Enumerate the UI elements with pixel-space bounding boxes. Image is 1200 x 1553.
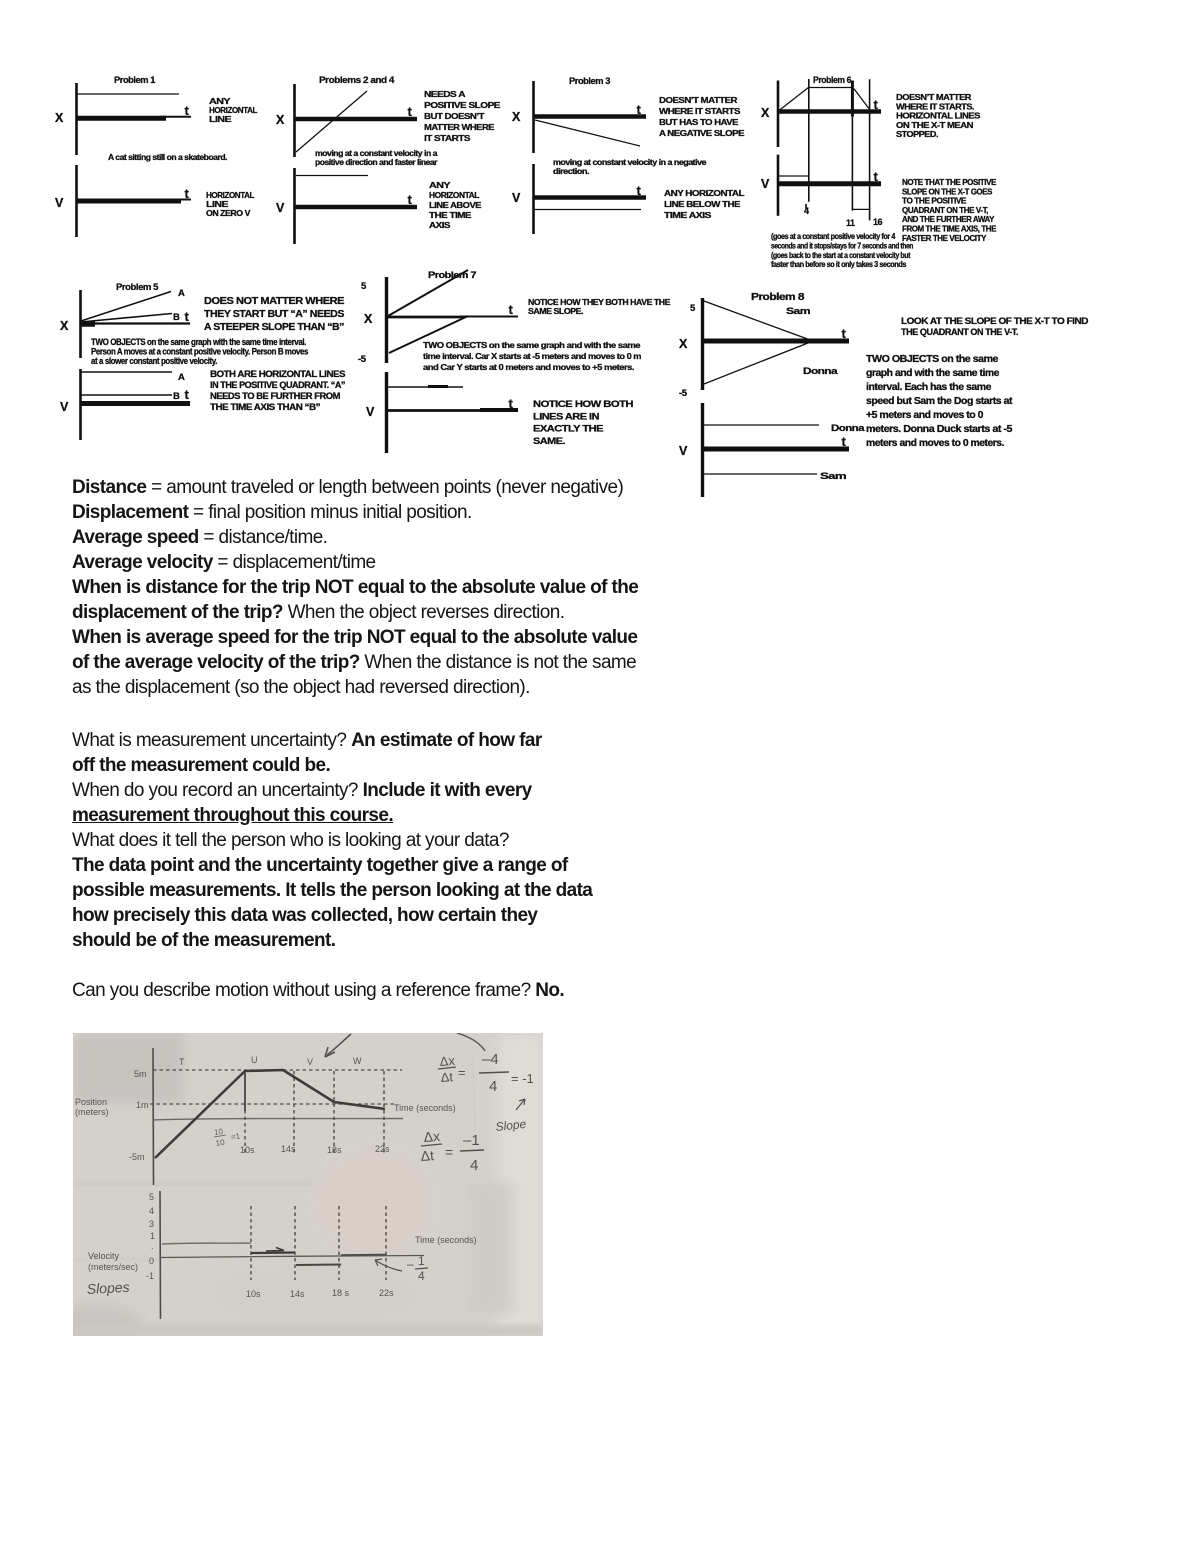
svg-text:10s: 10s [240, 1145, 255, 1155]
svg-text:V: V [366, 405, 375, 419]
svg-text:Donna: Donna [831, 423, 865, 434]
svg-text:Time (seconds): Time (seconds) [415, 1235, 477, 1245]
svg-text:THE QUADRANT ON THE V-T.: THE QUADRANT ON THE V-T. [901, 327, 1018, 338]
svg-text:DOESN’T MATTER: DOESN’T MATTER [659, 95, 738, 105]
svg-text:4: 4 [804, 206, 809, 216]
svg-text:Time (seconds): Time (seconds) [394, 1103, 456, 1113]
svg-text:speed but Sam the Dog starts a: speed but Sam the Dog starts at [866, 396, 1013, 407]
svg-text:meters and moves to 0 meters.: meters and moves to 0 meters. [866, 438, 1005, 449]
svg-text:SAME SLOPE.: SAME SLOPE. [528, 306, 583, 316]
svg-text:V: V [679, 444, 688, 458]
svg-text:seconds and it stops/stays for: seconds and it stops/stays for 7 seconds… [771, 241, 914, 250]
svg-text:22s: 22s [379, 1288, 394, 1298]
svg-text:X: X [512, 110, 521, 124]
svg-text:Δt: Δt [420, 1147, 434, 1164]
svg-text:(goes at a constant positive v: (goes at a constant positive velocity fo… [771, 232, 896, 241]
svg-text:LINE: LINE [209, 114, 232, 124]
svg-text:Problem 3: Problem 3 [569, 76, 610, 87]
svg-text:Problems 2 and 4: Problems 2 and 4 [319, 75, 395, 86]
svg-text:5m: 5m [134, 1069, 147, 1079]
svg-text:11: 11 [846, 218, 855, 228]
svg-text:THE TIME AXIS THAN “B”: THE TIME AXIS THAN “B” [210, 402, 320, 412]
svg-text:THEY START BUT “A” NEEDS: THEY START BUT “A” NEEDS [204, 308, 344, 320]
svg-text:faster than before so it only: faster than before so it only takes 3 se… [771, 260, 907, 269]
svg-text:X: X [761, 106, 770, 120]
svg-text:1: 1 [150, 1231, 155, 1241]
svg-text:=: = [445, 1144, 453, 1160]
svg-text:4: 4 [149, 1206, 154, 1216]
svg-text:= -1: = -1 [511, 1071, 534, 1086]
svg-text:V: V [276, 201, 285, 215]
svg-text:Sam: Sam [820, 471, 846, 482]
svg-text:4: 4 [470, 1157, 478, 1174]
svg-text:t: t [509, 302, 514, 317]
svg-text:STOPPED.: STOPPED. [896, 129, 938, 139]
svg-text:14s: 14s [290, 1289, 305, 1299]
svg-text:TWO OBJECTS on the same graph: TWO OBJECTS on the same graph and with t… [423, 340, 641, 350]
svg-text:ANY HORIZONTAL: ANY HORIZONTAL [664, 188, 745, 198]
svg-text:-1: -1 [146, 1271, 154, 1281]
svg-text:LINE ABOVE: LINE ABOVE [429, 200, 482, 210]
svg-text:X: X [276, 113, 285, 127]
svg-text:X: X [60, 319, 69, 333]
svg-text:Sam: Sam [786, 306, 810, 317]
svg-text:WHERE IT STARTS: WHERE IT STARTS [659, 106, 741, 116]
svg-text:-5m: -5m [129, 1152, 145, 1162]
svg-text:Problem 1: Problem 1 [114, 75, 156, 86]
svg-text:THE TIME: THE TIME [429, 210, 472, 220]
svg-text:10: 10 [215, 1138, 226, 1148]
svg-text:V: V [307, 1057, 313, 1067]
svg-text:Problem 6: Problem 6 [813, 75, 851, 86]
svg-text:interval. Each has the same: interval. Each has the same [866, 382, 992, 393]
svg-text:B: B [173, 391, 180, 402]
svg-text:Velocity: Velocity [88, 1251, 120, 1261]
svg-text:X: X [364, 312, 373, 326]
svg-text:Δx: Δx [423, 1128, 440, 1145]
svg-text:AXIS: AXIS [429, 220, 451, 230]
svg-text:TIME AXIS: TIME AXIS [664, 210, 712, 220]
svg-text:V: V [512, 191, 521, 205]
svg-text:V: V [55, 196, 64, 210]
svg-text:MATTER WHERE: MATTER WHERE [424, 122, 495, 132]
svg-text:–: – [407, 1257, 414, 1271]
svg-text:16: 16 [873, 217, 883, 227]
svg-text:(meters/sec): (meters/sec) [88, 1262, 138, 1272]
svg-text:TWO OBJECTS on the same: TWO OBJECTS on the same [866, 354, 999, 365]
svg-text:t: t [185, 309, 190, 324]
svg-text:BOTH ARE HORIZONTAL LINES: BOTH ARE HORIZONTAL LINES [210, 369, 345, 379]
svg-text:14s: 14s [281, 1144, 296, 1154]
svg-text:EXACTLY THE: EXACTLY THE [533, 424, 603, 435]
svg-text:HORIZONTAL: HORIZONTAL [429, 190, 480, 200]
svg-text:ON ZERO V: ON ZERO V [206, 208, 251, 218]
svg-text:IN THE POSITIVE QUADRANT. “A”: IN THE POSITIVE QUADRANT. “A” [210, 380, 345, 390]
svg-text:B: B [173, 312, 180, 323]
svg-text:Δt: Δt [440, 1069, 454, 1085]
svg-text:A NEGATIVE SLOPE: A NEGATIVE SLOPE [659, 128, 745, 138]
svg-text:LINE BELOW THE: LINE BELOW THE [664, 199, 741, 209]
svg-text:V: V [761, 177, 770, 191]
svg-text:at a slower constant positive: at a slower constant positive velocity. [91, 356, 217, 366]
svg-text:LINES ARE IN: LINES ARE IN [533, 411, 600, 422]
svg-text:Δx: Δx [439, 1053, 456, 1069]
svg-text:graph and with the same time: graph and with the same time [866, 368, 1000, 379]
svg-text:A: A [178, 372, 185, 383]
svg-text:3: 3 [149, 1219, 154, 1229]
svg-text:BUT DOESN’T: BUT DOESN’T [424, 111, 485, 121]
svg-text:Position: Position [75, 1097, 107, 1107]
svg-text:X: X [55, 111, 64, 125]
svg-text:POSITIVE SLOPE: POSITIVE SLOPE [424, 100, 501, 110]
svg-text:T: T [179, 1057, 185, 1067]
svg-text:SAME.: SAME. [533, 436, 565, 447]
svg-text:U: U [251, 1055, 258, 1065]
svg-text:1: 1 [418, 1254, 425, 1268]
svg-text:-5: -5 [358, 354, 367, 365]
svg-text:5: 5 [149, 1192, 154, 1202]
svg-text:V: V [60, 400, 69, 414]
svg-text:Problem 5: Problem 5 [116, 282, 159, 293]
svg-text:moving at constant velocity in: moving at constant velocity in a negativ… [553, 158, 707, 167]
svg-text:X: X [679, 337, 688, 351]
svg-text:ANY: ANY [429, 180, 451, 190]
svg-text:TWO OBJECTS on the same graph: TWO OBJECTS on the same graph with the s… [91, 337, 306, 347]
svg-text:Donna: Donna [803, 366, 838, 377]
svg-text:-5: -5 [679, 388, 688, 399]
svg-text:NEEDS A: NEEDS A [424, 89, 466, 99]
svg-text:18 s: 18 s [332, 1288, 350, 1298]
svg-text:positive direction and faster: positive direction and faster linear [315, 158, 437, 167]
svg-text:4: 4 [418, 1269, 425, 1283]
svg-text:Person A moves at a constant p: Person A moves at a constant positive ve… [91, 347, 308, 357]
svg-text:Problem 8: Problem 8 [751, 292, 805, 303]
svg-text:A: A [178, 288, 185, 299]
svg-text:direction.: direction. [553, 167, 589, 176]
svg-text:18s: 18s [327, 1145, 342, 1155]
svg-text:=: = [458, 1065, 466, 1080]
svg-text:A STEEPER SLOPE THAN “B”: A STEEPER SLOPE THAN “B” [204, 321, 344, 333]
svg-text:IT STARTS: IT STARTS [424, 133, 471, 143]
svg-text:NEEDS TO BE FURTHER FROM: NEEDS TO BE FURTHER FROM [210, 391, 340, 401]
svg-text:FASTER THE VELOCITY: FASTER THE VELOCITY [902, 233, 987, 243]
svg-text:Slopes: Slopes [86, 1279, 130, 1297]
svg-text:(meters): (meters) [75, 1107, 109, 1117]
svg-text:.: . [151, 1241, 154, 1251]
svg-text:22s: 22s [375, 1144, 390, 1154]
svg-text:5: 5 [690, 303, 696, 314]
svg-text:W: W [353, 1056, 362, 1066]
svg-text:t: t [185, 103, 190, 118]
svg-text:meters. Donna Duck starts at -: meters. Donna Duck starts at -5 [866, 424, 1013, 435]
svg-text:A cat sitting still on a skate: A cat sitting still on a skateboard. [108, 153, 227, 162]
svg-text:4: 4 [489, 1078, 497, 1095]
svg-text:–4: –4 [482, 1051, 499, 1068]
svg-text:DOES NOT MATTER WHERE: DOES NOT MATTER WHERE [204, 295, 344, 307]
svg-text:0: 0 [149, 1256, 154, 1266]
svg-text:BUT HAS TO HAVE: BUT HAS TO HAVE [659, 117, 739, 127]
svg-text:–1: –1 [463, 1132, 480, 1149]
svg-text:(goes back to the start at a c: (goes back to the start at a constant ve… [771, 251, 911, 260]
svg-text:+5 meters and moves to 0: +5 meters and moves to 0 [866, 410, 984, 421]
svg-text:5: 5 [361, 281, 367, 292]
svg-text:t: t [185, 387, 190, 402]
svg-text:=1: =1 [230, 1132, 241, 1142]
svg-text:1m: 1m [136, 1100, 149, 1110]
svg-text:time interval. Car X starts at: time interval. Car X starts at -5 meters… [423, 351, 642, 361]
svg-text:moving at a constant velocity: moving at a constant velocity in a [315, 149, 438, 158]
svg-text:NOTICE HOW BOTH: NOTICE HOW BOTH [533, 399, 634, 410]
svg-text:10s: 10s [246, 1289, 261, 1299]
svg-text:and Car Y starts at 0 meters a: and Car Y starts at 0 meters and moves t… [423, 362, 634, 372]
svg-text:LOOK AT THE SLOPE OF THE X-T T: LOOK AT THE SLOPE OF THE X-T TO FIND [901, 316, 1089, 327]
